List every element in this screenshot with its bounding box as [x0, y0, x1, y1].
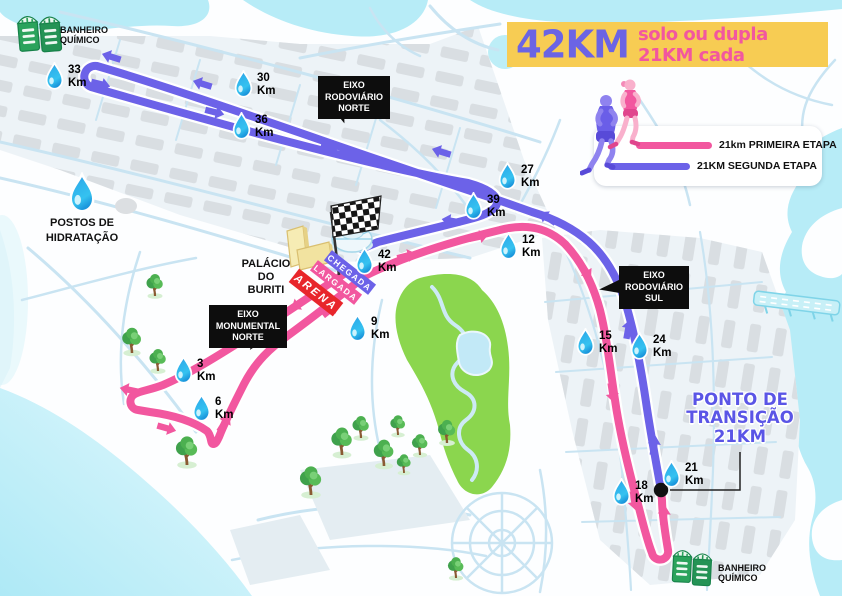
ponto-transicao-label: PONTO DE TRANSIÇÃO 21KM [678, 391, 802, 446]
km-unit: Km [197, 371, 216, 384]
callout-eixo-rodoviario-sul: EIXO RODOVIÁRIO SUL [619, 266, 689, 309]
banheiro-quimico-top-label: BANHEIRO QUÍMICO [60, 25, 108, 46]
water-drop-icon [231, 112, 252, 140]
km-value: 30 [257, 72, 276, 85]
km-unit: Km [635, 493, 654, 506]
water-drop-icon [354, 247, 375, 275]
water-drop-icon [233, 70, 254, 98]
km-marker-33: 33Km [44, 62, 87, 90]
water-drop-icon [463, 192, 484, 220]
banner-subtitle: solo ou dupla 21KM cada [638, 24, 828, 66]
callout-eixo-rodoviario-norte: EIXO RODOVIÁRIO NORTE [318, 76, 390, 119]
water-drop-icon [347, 314, 368, 342]
title-banner: 42KM solo ou dupla 21KM cada [507, 22, 828, 67]
km-unit: Km [257, 85, 276, 98]
km-marker-24: 24Km [629, 332, 672, 360]
km-value: 15 [599, 330, 618, 343]
km-unit: Km [378, 262, 397, 275]
legend-second-label: 21KM SEGUNDA ETAPA [697, 160, 817, 172]
km-marker-30: 30Km [233, 70, 276, 98]
km-value: 21 [685, 462, 704, 475]
km-value: 6 [215, 396, 234, 409]
km-unit: Km [521, 177, 540, 190]
km-unit: Km [68, 77, 87, 90]
km-value: 12 [522, 234, 541, 247]
km-value: 3 [197, 358, 216, 371]
hydration-drop-icon [67, 172, 97, 214]
km-marker-39: 39Km [463, 192, 506, 220]
km-unit: Km [685, 475, 704, 488]
km-marker-6: 6Km [191, 394, 234, 422]
km-value: 39 [487, 194, 506, 207]
km-value: 42 [378, 249, 397, 262]
km-unit: Km [371, 329, 390, 342]
km-value: 27 [521, 164, 540, 177]
km-unit: Km [599, 343, 618, 356]
km-value: 33 [68, 64, 87, 77]
runner-purple [582, 95, 616, 173]
water-drop-icon [191, 394, 212, 422]
km-marker-42: 42Km [354, 247, 397, 275]
km-unit: Km [653, 347, 672, 360]
water-drop-icon [173, 356, 194, 384]
legend-first-label: 21km PRIMEIRA ETAPA [719, 139, 837, 151]
callout-eixo-monumental-norte: EIXO MONUMENTAL NORTE [209, 305, 287, 348]
km-marker-3: 3Km [173, 356, 216, 384]
postos-hidratacao: POSTOS DE HIDRATAÇÃO [18, 172, 146, 246]
banner-distance: 42KM [516, 22, 629, 67]
water-drop-icon [498, 232, 519, 260]
water-drop-icon [575, 328, 596, 356]
banheiro-quimico-bottom-label: BANHEIRO QUÍMICO [718, 563, 766, 584]
km-unit: Km [522, 247, 541, 260]
km-value: 18 [635, 480, 654, 493]
km-unit: Km [215, 409, 234, 422]
km-marker-21: 21Km [661, 460, 704, 488]
marathon-route-map: 42KM solo ou dupla 21KM cada 21km PRIMEI… [0, 0, 842, 596]
roundabout-streets [452, 493, 552, 593]
map-graphics [0, 0, 842, 596]
water-drop-icon [611, 478, 632, 506]
km-marker-9: 9Km [347, 314, 390, 342]
km-marker-15: 15Km [575, 328, 618, 356]
km-value: 24 [653, 334, 672, 347]
water-drop-icon [497, 162, 518, 190]
km-marker-18: 18Km [611, 478, 654, 506]
km-marker-12: 12Km [498, 232, 541, 260]
water-drop-icon [44, 62, 65, 90]
water-drop-icon [629, 332, 650, 360]
km-unit: Km [487, 207, 506, 220]
postos-hidratacao-label: POSTOS DE HIDRATAÇÃO [18, 216, 146, 246]
km-value: 36 [255, 114, 274, 127]
runners-illustration [580, 72, 658, 184]
water-drop-icon [661, 460, 682, 488]
km-marker-36: 36Km [231, 112, 274, 140]
km-marker-27: 27Km [497, 162, 540, 190]
km-unit: Km [255, 127, 274, 140]
km-value: 9 [371, 316, 390, 329]
palacio-do-buriti-label: PALÁCIO DO BURITI [238, 258, 294, 296]
